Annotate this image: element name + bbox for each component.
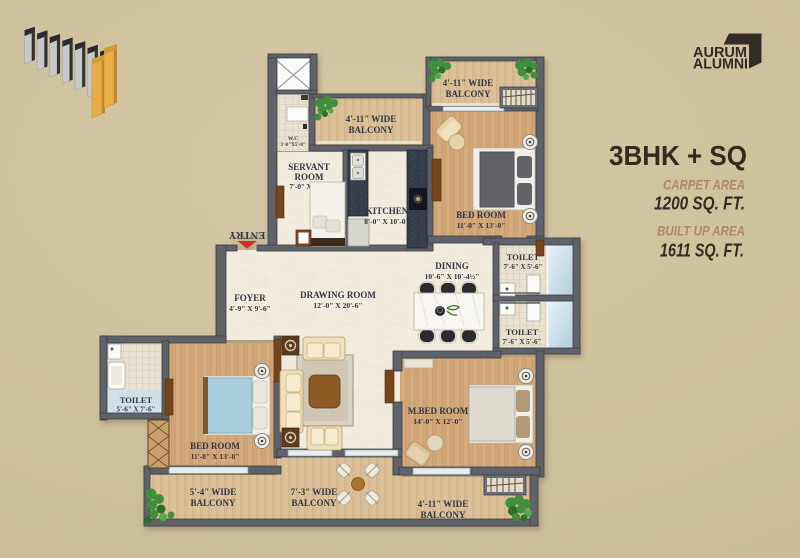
svg-text:1200 SQ. FT.: 1200 SQ. FT.	[654, 193, 745, 214]
svg-text:11'-0" X 13'-0": 11'-0" X 13'-0"	[191, 452, 240, 461]
svg-text:7'-6" X 5'-6": 7'-6" X 5'-6"	[504, 263, 543, 271]
svg-text:TOILET: TOILET	[507, 252, 540, 262]
svg-text:4'-9" X 9'-6": 4'-9" X 9'-6"	[229, 304, 271, 313]
svg-text:SERVANT: SERVANT	[288, 162, 330, 172]
svg-text:3BHK + SQ: 3BHK + SQ	[609, 140, 747, 171]
svg-text:5'-6" X 7'-6": 5'-6" X 7'-6"	[117, 406, 156, 414]
svg-text:ROOM: ROOM	[295, 172, 325, 182]
svg-text:BUILT UP AREA: BUILT UP AREA	[657, 223, 745, 239]
svg-text:7'-3" WIDE: 7'-3" WIDE	[291, 487, 338, 497]
svg-text:BED ROOM: BED ROOM	[190, 441, 240, 451]
svg-text:BALCONY: BALCONY	[291, 498, 337, 508]
svg-text:W.C: W.C	[288, 136, 298, 142]
svg-text:BALCONY: BALCONY	[445, 89, 491, 99]
svg-text:KITCHEN: KITCHEN	[366, 206, 409, 216]
svg-text:TOILET: TOILET	[120, 395, 153, 405]
svg-text:BALCONY: BALCONY	[190, 498, 236, 508]
svg-text:DRAWING ROOM: DRAWING ROOM	[300, 290, 376, 300]
svg-text:DINING: DINING	[435, 261, 469, 271]
svg-text:ALUMNI: ALUMNI	[693, 57, 748, 73]
svg-text:4'-11" WIDE: 4'-11" WIDE	[443, 78, 494, 88]
svg-text:BED ROOM: BED ROOM	[456, 210, 506, 220]
svg-text:3'-6"X5'-0": 3'-6"X5'-0"	[280, 143, 305, 148]
svg-text:8'-0" X 10'-0": 8'-0" X 10'-0"	[364, 217, 409, 226]
svg-text:14'-0" X 12'-0": 14'-0" X 12'-0"	[413, 417, 462, 426]
svg-text:5'-4" WIDE: 5'-4" WIDE	[190, 487, 237, 497]
svg-text:BALCONY: BALCONY	[348, 125, 394, 135]
svg-text:10'-6" X 10'-4½": 10'-6" X 10'-4½"	[425, 272, 480, 281]
svg-text:FOYER: FOYER	[234, 293, 266, 303]
svg-text:ENTRY: ENTRY	[228, 229, 265, 240]
svg-text:1611 SQ. FT.: 1611 SQ. FT.	[660, 240, 744, 261]
svg-text:11'-0" X 13'-0": 11'-0" X 13'-0"	[457, 221, 506, 230]
svg-text:TOILET: TOILET	[506, 327, 539, 337]
svg-text:BALCONY: BALCONY	[420, 510, 466, 520]
svg-text:M.BED ROOM: M.BED ROOM	[408, 406, 469, 416]
svg-text:4'-11" WIDE: 4'-11" WIDE	[418, 499, 469, 509]
svg-text:7'-6" X 5'-6": 7'-6" X 5'-6"	[503, 338, 542, 346]
svg-text:CARPET AREA: CARPET AREA	[663, 177, 745, 193]
svg-text:4'-11" WIDE: 4'-11" WIDE	[346, 114, 397, 124]
svg-text:12'-0" X 20'-6": 12'-0" X 20'-6"	[313, 301, 362, 310]
